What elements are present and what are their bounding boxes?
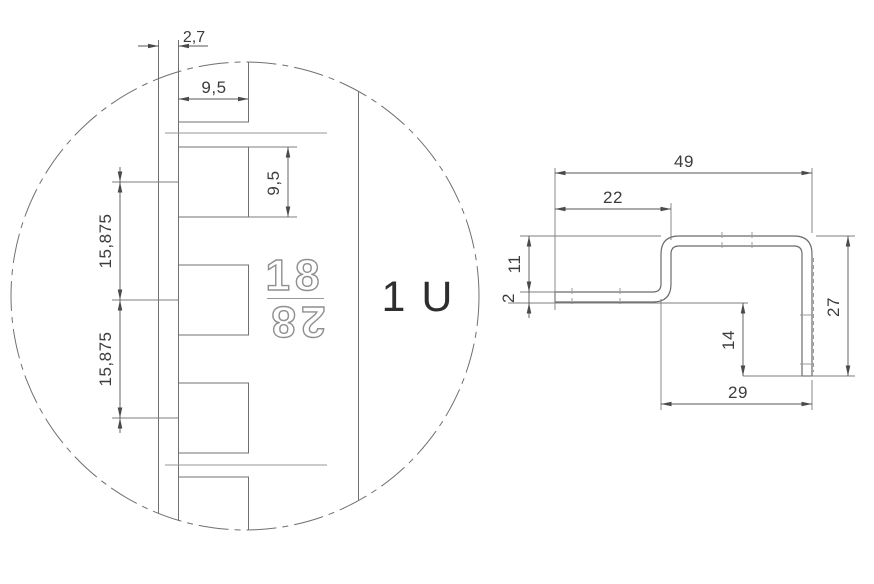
dim-leg-height: 14 [719, 303, 743, 376]
drawing-canvas: 2,7 9,5 9,5 15,875 15,875 18 [0, 0, 874, 584]
dim-overall-height: 27 [824, 236, 848, 376]
dim-bottom-width: 29 [661, 383, 812, 404]
detail-view: 2,7 9,5 9,5 15,875 15,875 18 [11, 29, 479, 550]
dim-step-width: 22 [555, 188, 671, 209]
dim-total-width: 49 [555, 152, 812, 173]
unit-number-marking: 18 28 [266, 251, 326, 346]
technical-drawing: 2,7 9,5 9,5 15,875 15,875 18 [0, 0, 874, 584]
profile-view: 49 22 11 2 27 14 29 [499, 152, 855, 410]
dim-step-height: 11 [505, 236, 529, 292]
dim-step-width-text: 22 [603, 188, 623, 207]
unit-marking-bottom-text: 28 [267, 297, 326, 346]
bracket-profile-outer [555, 236, 812, 376]
dim-flange-offset: 2,7 [138, 29, 208, 46]
mounting-hole-5 [179, 477, 249, 550]
dim-thickness-text: 2 [499, 293, 518, 303]
dim-step-height-text: 11 [505, 255, 524, 274]
dim-hole-height-text: 9,5 [264, 170, 283, 195]
dim-thickness: 2 [499, 292, 529, 318]
dim-flange-offset-text: 2,7 [183, 29, 205, 46]
mounting-hole-4 [179, 383, 249, 453]
dim-hole-pitch-upper-text: 15,875 [96, 214, 115, 269]
dim-hole-height: 9,5 [249, 147, 298, 217]
dim-hole-width-text: 9,5 [201, 78, 226, 97]
dim-hole-pitch-lower-text: 15,875 [96, 332, 115, 387]
dim-bottom-width-text: 29 [728, 383, 748, 402]
mounting-hole-3 [179, 265, 249, 335]
dim-leg-height-text: 14 [719, 330, 738, 350]
dim-hole-width: 9,5 [179, 78, 249, 99]
dim-hole-pitch-chain: 15,875 15,875 [96, 167, 179, 433]
bracket-profile-inner [555, 246, 802, 376]
mounting-hole-2 [179, 147, 249, 217]
dim-total-width-text: 49 [674, 152, 694, 171]
unit-height-label: 1 U [382, 273, 455, 321]
unit-marking-top-text: 18 [266, 251, 325, 300]
dim-overall-height-text: 27 [824, 297, 843, 317]
